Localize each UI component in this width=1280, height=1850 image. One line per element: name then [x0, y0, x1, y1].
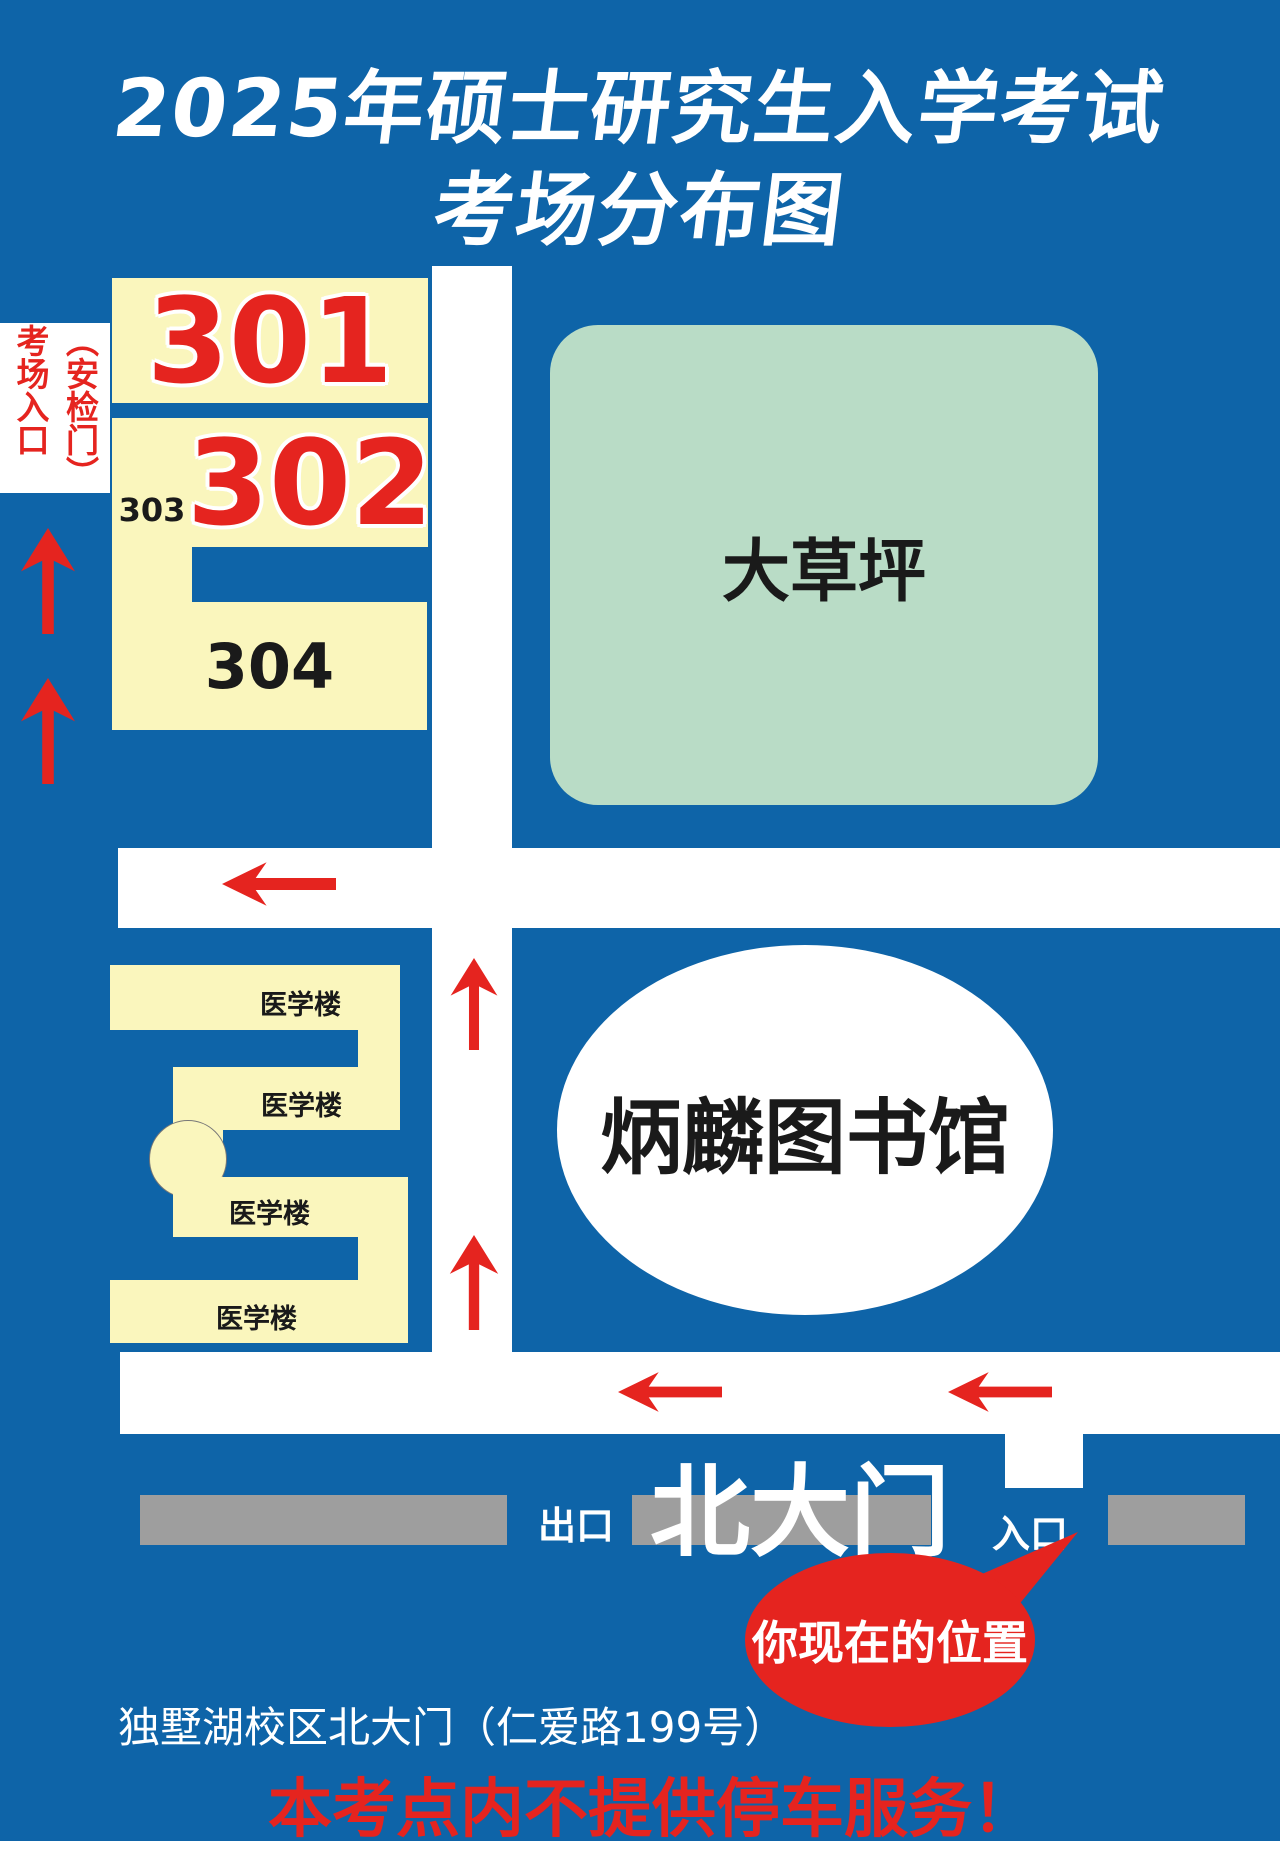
- room-302: 302: [192, 418, 428, 547]
- security-gate-label-right: （安检门）: [61, 324, 100, 489]
- room-303: 303: [112, 418, 192, 602]
- medical-building-2-label: 医学楼: [261, 1084, 342, 1123]
- library-label: 炳麟图书馆: [600, 1071, 1010, 1190]
- medical-connector-right-2: [358, 1237, 408, 1280]
- security-gate-label: （安检门）考场入口: [6, 324, 105, 492]
- lawn: 大草坪: [550, 325, 1098, 805]
- room-301-label: 301: [147, 272, 393, 410]
- medical-building-1-label: 医学楼: [260, 983, 341, 1022]
- page-title-line1: 2025年硕士研究生入学考试: [0, 44, 1280, 160]
- medical-building-1: 医学楼: [110, 965, 400, 1030]
- exit-label-text: 出口: [538, 1495, 614, 1550]
- medical-building-2: 医学楼: [173, 1067, 400, 1130]
- campus-map-background: 2025年硕士研究生入学考试 考场分布图 （安检门）考场入口 301 303 3…: [0, 0, 1280, 1841]
- fence-bar-right: [1108, 1495, 1245, 1545]
- room-301: 301: [112, 278, 428, 403]
- address-line: 独墅湖校区北大门（仁爱路199号）: [118, 1694, 786, 1755]
- up-arrow-icon-road-2: [448, 1235, 500, 1330]
- up-arrow-icon-left-1: [18, 528, 78, 634]
- medical-building-3: 医学楼: [173, 1177, 408, 1237]
- security-gate-label-left: 考场入口: [11, 324, 50, 456]
- location-bubble: 你现在的位置: [745, 1553, 1035, 1727]
- medical-building-3-label: 医学楼: [229, 1192, 310, 1231]
- room-304-label: 304: [205, 630, 334, 703]
- north-gate-label: 北大门: [640, 1446, 960, 1561]
- room-304: 304: [112, 602, 427, 730]
- notice-line: 本考点内不提供停车服务！: [268, 1758, 1036, 1850]
- page-title-line2: 考场分布图: [0, 146, 1280, 262]
- fence-bar-left: [140, 1495, 507, 1545]
- road-vertical: [432, 266, 512, 1366]
- medical-building-4-label: 医学楼: [216, 1297, 297, 1336]
- medical-building-4: 医学楼: [110, 1280, 408, 1343]
- medical-connector-right-1: [358, 1030, 400, 1067]
- room-303-label: 303: [119, 491, 186, 529]
- up-arrow-icon-left-2: [18, 678, 78, 784]
- left-arrow-icon-bottom-road-1: [618, 1372, 722, 1412]
- library-ellipse: 炳麟图书馆: [557, 945, 1053, 1315]
- gate-opening: [1005, 1434, 1083, 1488]
- location-bubble-label: 你现在的位置: [752, 1607, 1028, 1673]
- room-302-label: 302: [187, 414, 433, 552]
- lawn-label: 大草坪: [722, 516, 926, 615]
- security-gate-label-box: （安检门）考场入口: [0, 323, 110, 493]
- up-arrow-icon-road-1: [448, 958, 500, 1050]
- exit-label: 出口: [520, 1498, 632, 1546]
- left-arrow-icon-upper-road: [222, 862, 336, 906]
- left-arrow-icon-bottom-road-2: [948, 1372, 1052, 1412]
